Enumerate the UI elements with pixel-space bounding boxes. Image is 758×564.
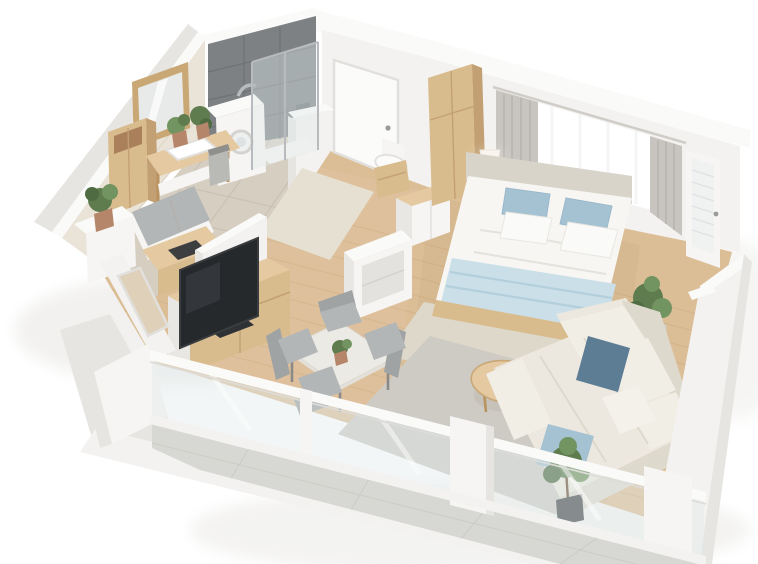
balcony-door-handle[interactable] [714, 212, 719, 217]
door-handle[interactable] [385, 125, 390, 130]
trash-bin[interactable] [208, 144, 230, 186]
floor-plan-render [0, 0, 758, 564]
apartment-scene [0, 0, 758, 564]
glass-mullion [300, 388, 312, 462]
tall-bath-cabinet[interactable] [108, 118, 158, 216]
balcony-door[interactable] [686, 150, 720, 268]
